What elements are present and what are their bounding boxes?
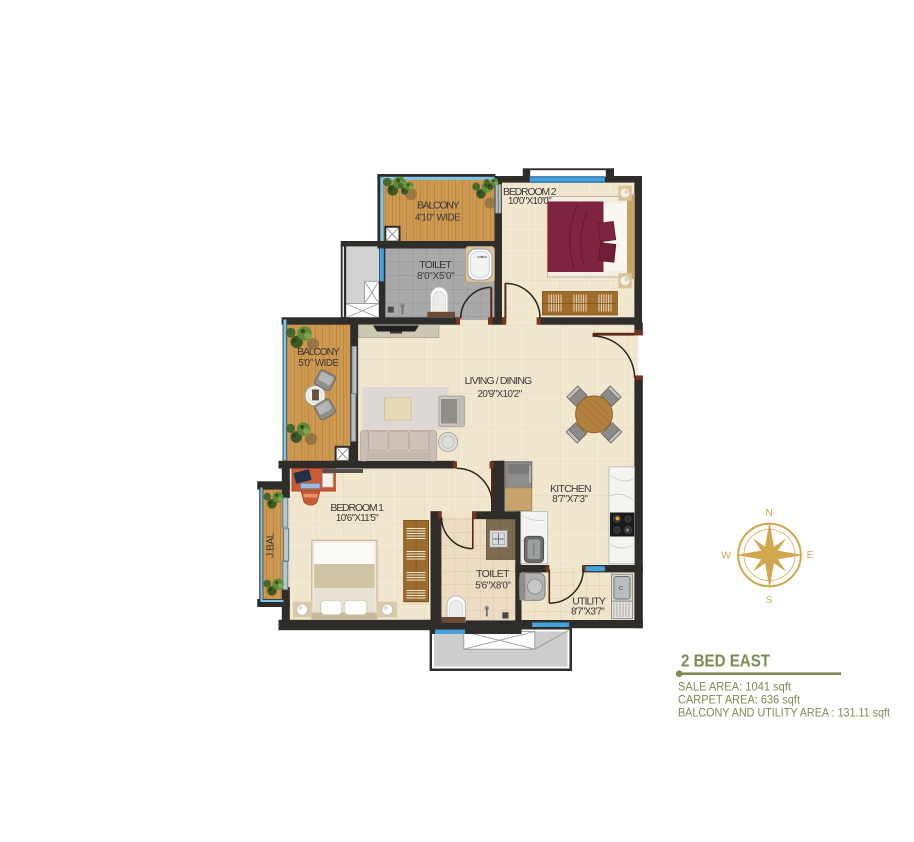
svg-text:8'7"X3'7": 8'7"X3'7" xyxy=(571,607,605,618)
svg-text:20'9"X10'2": 20'9"X10'2" xyxy=(478,389,523,400)
svg-text:W: W xyxy=(721,551,731,562)
svg-text:CARPET AREA: 636 sqft: CARPET AREA: 636 sqft xyxy=(678,693,801,707)
svg-text:TOILET: TOILET xyxy=(419,259,452,271)
svg-text:BALCONY: BALCONY xyxy=(297,346,340,358)
svg-text:2 BED EAST: 2 BED EAST xyxy=(681,651,770,671)
svg-text:SALE AREA: 1041 sqft: SALE AREA: 1041 sqft xyxy=(678,680,792,694)
svg-text:10'6"X11'5": 10'6"X11'5" xyxy=(336,513,379,524)
svg-text:5'0" WIDE: 5'0" WIDE xyxy=(298,358,339,369)
svg-text:BALCONY: BALCONY xyxy=(417,200,460,212)
svg-text:4'10" WIDE: 4'10" WIDE xyxy=(415,213,461,224)
svg-text:J.BAL: J.BAL xyxy=(265,532,277,558)
svg-text:LIVING / DINING: LIVING / DINING xyxy=(465,375,533,387)
svg-text:C: C xyxy=(619,586,623,592)
svg-text:TOILET: TOILET xyxy=(476,568,510,580)
svg-text:N: N xyxy=(765,508,772,519)
svg-text:10'0"X10'0": 10'0"X10'0" xyxy=(508,196,552,207)
svg-text:8'7"X7'3": 8'7"X7'3" xyxy=(552,494,588,505)
svg-text:BALCONY AND UTILITY AREA : 131: BALCONY AND UTILITY AREA : 131.11 sqft xyxy=(678,706,891,720)
svg-text:5'6"X8'0": 5'6"X8'0" xyxy=(475,581,511,592)
svg-text:S: S xyxy=(766,595,773,606)
svg-text:8'0"X5'0": 8'0"X5'0" xyxy=(417,271,455,282)
svg-text:E: E xyxy=(807,550,814,561)
